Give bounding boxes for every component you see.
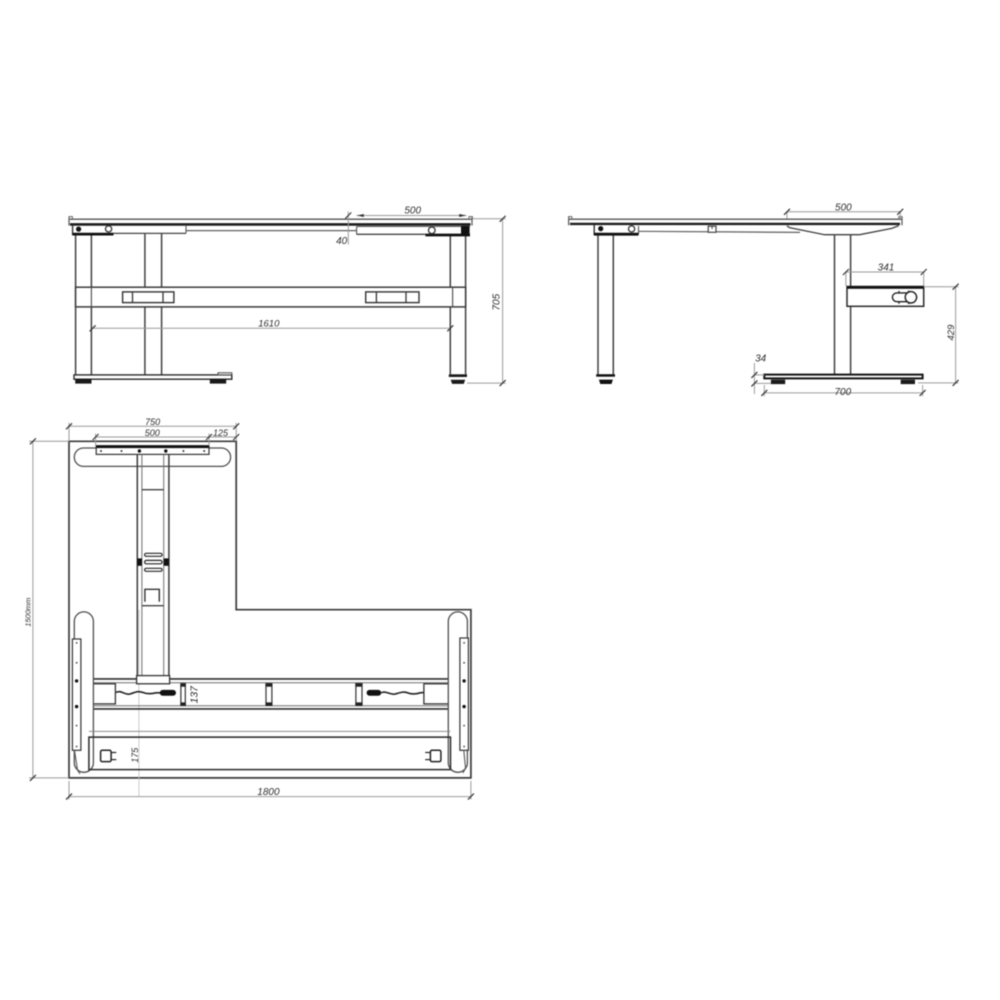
svg-text:125: 125 <box>213 428 229 438</box>
svg-text:429: 429 <box>946 324 957 341</box>
svg-text:750: 750 <box>145 417 160 427</box>
svg-text:34: 34 <box>755 354 767 365</box>
svg-text:1610: 1610 <box>258 318 280 329</box>
svg-text:40: 40 <box>336 236 348 247</box>
svg-text:175: 175 <box>130 747 140 763</box>
svg-text:341: 341 <box>878 262 895 273</box>
svg-text:1500mm: 1500mm <box>24 598 33 627</box>
svg-text:500: 500 <box>404 206 421 217</box>
svg-text:137: 137 <box>189 685 201 704</box>
svg-text:500: 500 <box>145 428 160 438</box>
svg-text:500: 500 <box>835 202 852 213</box>
svg-text:1800: 1800 <box>257 787 280 798</box>
svg-text:700: 700 <box>834 387 851 398</box>
svg-text:705: 705 <box>492 293 503 310</box>
